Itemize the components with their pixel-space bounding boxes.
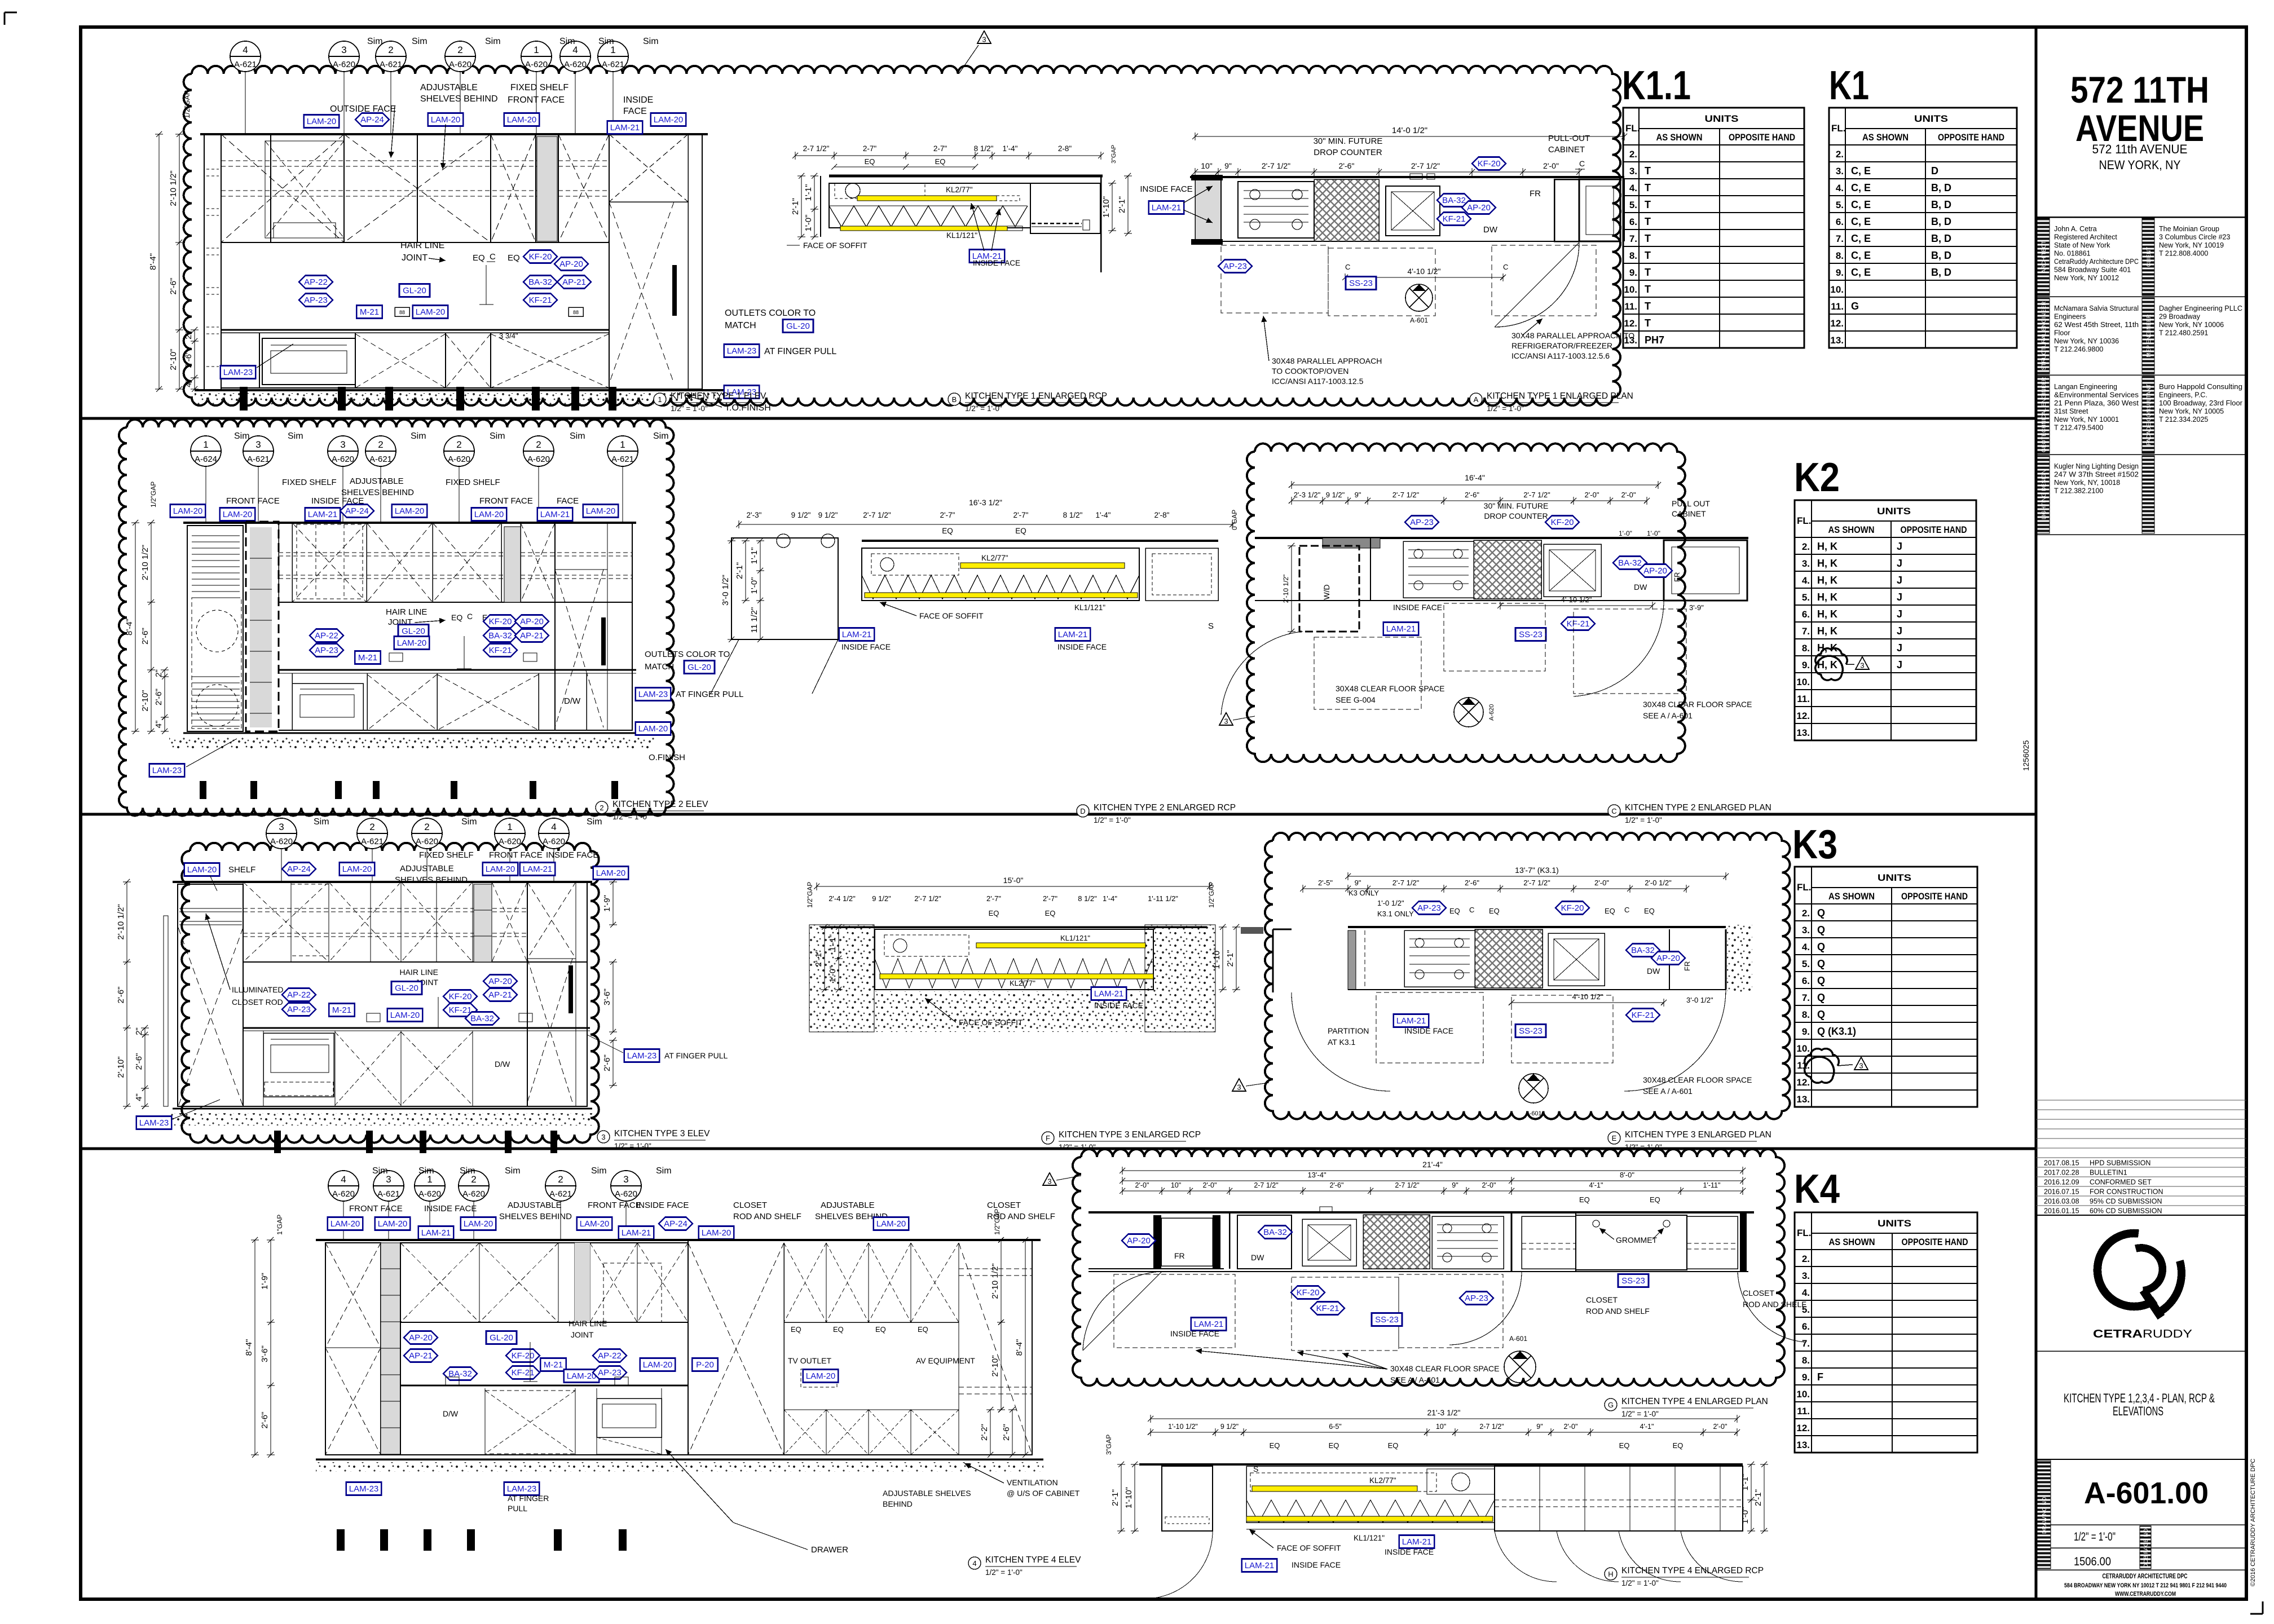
- svg-text:C: C: [1579, 159, 1585, 168]
- svg-text:LAM-20: LAM-20: [397, 638, 427, 648]
- svg-text:2'-1": 2'-1": [1110, 1489, 1120, 1506]
- svg-text:Q: Q: [1817, 1009, 1825, 1020]
- svg-text:INSIDE FACE: INSIDE FACE: [1140, 184, 1192, 194]
- svg-text:30" MIN. FUTURE: 30" MIN. FUTURE: [1484, 501, 1549, 510]
- svg-text:LAM-21: LAM-21: [1194, 1319, 1224, 1329]
- svg-text:C: C: [467, 612, 473, 621]
- svg-text:PH7: PH7: [1645, 334, 1664, 346]
- svg-text:2'-6": 2'-6": [184, 351, 193, 368]
- svg-text:A-620: A-620: [332, 1189, 355, 1199]
- svg-text:ICC/ANSI A117-1003.12.5: ICC/ANSI A117-1003.12.5: [1272, 377, 1364, 386]
- svg-text:3.: 3.: [1802, 925, 1810, 935]
- svg-text:2: 2: [456, 439, 461, 450]
- svg-text:T: T: [1645, 317, 1651, 329]
- svg-text:3: 3: [1237, 1083, 1241, 1091]
- svg-text:Langan Engineering: Langan Engineering: [2054, 383, 2117, 391]
- svg-text:2'-0": 2'-0": [1203, 1181, 1217, 1189]
- svg-text:ARCHITECT: ARCHITECT: [2041, 241, 2047, 273]
- svg-text:LAM-20: LAM-20: [580, 1219, 610, 1229]
- svg-text:1/2" = 1'-0": 1/2" = 1'-0": [1094, 816, 1131, 824]
- svg-text:P-20: P-20: [696, 1360, 714, 1370]
- svg-text:CetraRuddy Architecture DPC: CetraRuddy Architecture DPC: [2054, 258, 2139, 266]
- svg-text:SS-23: SS-23: [1349, 279, 1373, 288]
- svg-text:EQ: EQ: [1673, 1441, 1684, 1450]
- svg-text:G: G: [1608, 1401, 1614, 1409]
- svg-text:3 3/4": 3 3/4": [499, 332, 518, 340]
- svg-text:LAM-20: LAM-20: [586, 506, 616, 516]
- svg-text:EQ: EQ: [918, 1325, 928, 1334]
- svg-text:SHELVES BEHIND: SHELVES BEHIND: [420, 94, 498, 104]
- svg-text:K3 ONLY: K3 ONLY: [1348, 889, 1379, 897]
- svg-text:2'-0 1/2": 2'-0 1/2": [1645, 879, 1672, 887]
- svg-text:SEE G-004: SEE G-004: [1336, 695, 1376, 704]
- svg-text:2: 2: [378, 439, 383, 450]
- svg-text:Kugler Ning Lighting Design: Kugler Ning Lighting Design: [2054, 462, 2139, 470]
- svg-text:C, E: C, E: [1851, 199, 1871, 210]
- svg-text:F: F: [1046, 1134, 1050, 1142]
- svg-text:UNITS: UNITS: [1878, 1218, 1911, 1229]
- svg-text:A-621: A-621: [377, 1189, 400, 1199]
- svg-text:B, D: B, D: [1931, 182, 1951, 193]
- svg-text:AP-20: AP-20: [1127, 1236, 1151, 1246]
- svg-text:K3.1 ONLY: K3.1 ONLY: [1377, 910, 1414, 918]
- svg-text:Sim: Sim: [460, 1166, 475, 1176]
- svg-text:4'-10 1/2": 4'-10 1/2": [1572, 992, 1603, 1001]
- svg-text:3'-0 1/2": 3'-0 1/2": [1686, 996, 1713, 1004]
- svg-text:New York, NY 10005: New York, NY 10005: [2159, 408, 2224, 416]
- svg-text:T 212.246.9800: T 212.246.9800: [2054, 346, 2103, 354]
- svg-text:AT FINGER PULL: AT FINGER PULL: [664, 1051, 728, 1060]
- svg-text:30" MIN. FUTURE: 30" MIN. FUTURE: [1314, 136, 1383, 146]
- svg-text:2'-10 1/2": 2'-10 1/2": [116, 904, 126, 939]
- svg-text:EQ: EQ: [1270, 1441, 1280, 1450]
- svg-text:H, K: H, K: [1817, 558, 1837, 569]
- svg-text:2016.07.15: 2016.07.15: [2044, 1188, 2079, 1196]
- svg-text:2'-4 1/2": 2'-4 1/2": [828, 894, 856, 903]
- svg-text:1'-10": 1'-10": [1212, 947, 1222, 969]
- svg-text:DROP COUNTER: DROP COUNTER: [1314, 148, 1382, 157]
- svg-text:1'-4": 1'-4": [1096, 511, 1111, 519]
- svg-text:KITCHEN TYPE 3 ENLARGED RCP: KITCHEN TYPE 3 ENLARGED RCP: [1059, 1130, 1201, 1140]
- svg-text:EQ: EQ: [473, 253, 485, 263]
- svg-text:LAM-20: LAM-20: [416, 307, 446, 317]
- svg-text:1'-1": 1'-1": [750, 548, 759, 564]
- svg-text:LAM-20: LAM-20: [643, 1360, 673, 1370]
- svg-text:4.: 4.: [1802, 1287, 1810, 1298]
- svg-text:1'-1": 1'-1": [828, 934, 838, 951]
- svg-text:7.: 7.: [1802, 626, 1810, 637]
- svg-text:LAM-20: LAM-20: [638, 724, 668, 734]
- svg-text:A-601: A-601: [1410, 316, 1428, 324]
- svg-text:1/2" = 1'-0": 1/2" = 1'-0": [1625, 816, 1662, 824]
- svg-text:Sim: Sim: [461, 817, 477, 827]
- svg-text:FIXED SHELF: FIXED SHELF: [446, 478, 500, 487]
- svg-text:12.: 12.: [1830, 318, 1844, 329]
- svg-text:2'-6": 2'-6": [1330, 1181, 1344, 1189]
- svg-text:©2016 CETRARUDDY ARCHITECTURE: ©2016 CETRARUDDY ARCHITECTURE DPC: [2250, 1459, 2257, 1587]
- svg-text:1/2"GAP: 1/2"GAP: [806, 882, 814, 908]
- svg-text:3: 3: [1224, 717, 1228, 725]
- svg-text:AP-20: AP-20: [409, 1333, 433, 1343]
- svg-text:T: T: [1645, 233, 1651, 244]
- svg-text:OPPOSITE HAND: OPPOSITE HAND: [1938, 132, 2004, 143]
- svg-text:Q: Q: [1817, 992, 1825, 1003]
- svg-text:11.: 11.: [1797, 1406, 1810, 1416]
- svg-text:GL-20: GL-20: [688, 663, 711, 672]
- svg-text:FOR CONSTRUCTION: FOR CONSTRUCTION: [2090, 1188, 2163, 1196]
- svg-text:&Environmental Services: &Environmental Services: [2054, 391, 2139, 399]
- svg-text:1: 1: [534, 45, 539, 55]
- svg-text:G: G: [1851, 301, 1859, 312]
- svg-text:8.: 8.: [1802, 643, 1810, 654]
- svg-text:KF-20: KF-20: [1561, 903, 1584, 913]
- svg-text:2.: 2.: [1802, 1254, 1810, 1264]
- svg-text:C: C: [1611, 807, 1616, 815]
- svg-text:A-621: A-621: [361, 837, 384, 846]
- svg-text:9.: 9.: [1629, 267, 1637, 278]
- svg-text:BA-32: BA-32: [470, 1014, 494, 1023]
- svg-text:@ U/S OF CABINET: @ U/S OF CABINET: [1007, 1489, 1080, 1498]
- svg-text:572 11TH: 572 11TH: [2070, 69, 2209, 111]
- svg-text:PULL-OUT: PULL-OUT: [1548, 134, 1590, 143]
- svg-text:A-621: A-621: [247, 454, 270, 464]
- svg-text:AS SHOWN: AS SHOWN: [1656, 132, 1703, 143]
- svg-text:H, K: H, K: [1817, 541, 1837, 552]
- svg-text:D/W: D/W: [564, 696, 581, 706]
- svg-text:21 Penn Plaza, 360 West: 21 Penn Plaza, 360 West: [2054, 399, 2139, 407]
- svg-text:9": 9": [1536, 1423, 1543, 1431]
- svg-text:584 Broadway Suite 401: 584 Broadway Suite 401: [2054, 266, 2131, 274]
- svg-text:T: T: [1645, 250, 1651, 261]
- svg-text:GROMMET: GROMMET: [1616, 1235, 1658, 1245]
- svg-text:HAIR LINE: HAIR LINE: [400, 968, 438, 977]
- svg-text:FRONT FACE: FRONT FACE: [489, 850, 543, 860]
- svg-text:572 11th AVENUE: 572 11th AVENUE: [2092, 142, 2188, 156]
- svg-text:5.: 5.: [1836, 200, 1844, 210]
- svg-text:FIXED SHELF: FIXED SHELF: [282, 478, 337, 487]
- svg-text:KITCHEN TYPE 1 ELEV: KITCHEN TYPE 1 ELEV: [671, 391, 766, 401]
- svg-text:2'-8": 2'-8": [1154, 511, 1170, 519]
- svg-text:4'-10 1/2": 4'-10 1/2": [1561, 595, 1592, 604]
- svg-text:2'-1": 2'-1": [1226, 950, 1235, 967]
- svg-text:PULL: PULL: [508, 1504, 527, 1513]
- svg-text:FR: FR: [1174, 1251, 1185, 1260]
- svg-text:OPPOSITE HAND: OPPOSITE HAND: [1729, 132, 1795, 143]
- svg-text:2'-10 1/2": 2'-10 1/2": [1282, 575, 1290, 603]
- svg-text:INSIDE FACE: INSIDE FACE: [841, 642, 891, 651]
- svg-text:2'-3": 2'-3": [747, 511, 762, 519]
- svg-text:9 1/2": 9 1/2": [1220, 1423, 1239, 1431]
- svg-text:4: 4: [972, 1559, 976, 1568]
- svg-text:BA-32: BA-32: [1631, 946, 1655, 955]
- svg-text:62 West 45th Street, 11th: 62 West 45th Street, 11th: [2054, 321, 2139, 329]
- svg-text:16'-3 1/2": 16'-3 1/2": [969, 498, 1002, 507]
- svg-text:3.: 3.: [1629, 166, 1637, 176]
- svg-text:2'-7": 2'-7": [1013, 511, 1029, 519]
- svg-text:13'-7" (K3.1): 13'-7" (K3.1): [1515, 866, 1559, 875]
- svg-text:1'-0": 1'-0": [1740, 1507, 1750, 1524]
- svg-text:J: J: [1897, 575, 1902, 586]
- svg-text:FACE OF SOFFIT: FACE OF SOFFIT: [919, 611, 984, 620]
- svg-text:11.: 11.: [1797, 694, 1810, 704]
- svg-text:JOINT: JOINT: [571, 1330, 594, 1339]
- svg-text:1'-1": 1'-1": [1740, 1474, 1750, 1491]
- svg-text:2": 2": [134, 1027, 144, 1035]
- svg-text:BULLETIN1: BULLETIN1: [2090, 1169, 2127, 1177]
- svg-text:2'-0": 2'-0": [1482, 1181, 1496, 1189]
- svg-text:S: S: [1208, 621, 1214, 631]
- svg-text:MEP ENGINEER: MEP ENGINEER: [2146, 314, 2152, 358]
- svg-text:1/2" = 1'-0": 1/2" = 1'-0": [985, 1568, 1023, 1577]
- svg-text:2: 2: [369, 822, 374, 832]
- svg-text:FL.: FL.: [1625, 123, 1640, 134]
- svg-text:INSIDE: INSIDE: [623, 95, 653, 105]
- svg-text:7.: 7.: [1836, 233, 1844, 244]
- svg-text:FR: FR: [1530, 189, 1541, 198]
- svg-text:A-620: A-620: [615, 1189, 637, 1199]
- svg-text:KF-21: KF-21: [1632, 1010, 1655, 1020]
- svg-text:8'-0": 8'-0": [1620, 1171, 1634, 1179]
- svg-text:LAM-21: LAM-21: [1152, 203, 1182, 213]
- svg-text:1'-11 1/2": 1'-11 1/2": [1148, 894, 1178, 903]
- svg-text:10.: 10.: [1796, 1043, 1810, 1054]
- svg-text:2-7 1/2": 2-7 1/2": [1254, 1181, 1278, 1189]
- svg-text:3: 3: [1047, 1177, 1051, 1185]
- svg-text:9.: 9.: [1802, 1372, 1810, 1383]
- svg-text:4": 4": [154, 721, 164, 729]
- svg-text:LAM-20: LAM-20: [464, 1219, 493, 1229]
- svg-text:LAM-20: LAM-20: [654, 115, 684, 125]
- svg-text:CLIENT: CLIENT: [2146, 247, 2152, 267]
- svg-text:ILLUMINATED: ILLUMINATED: [232, 985, 284, 994]
- svg-text:T.O.FINISH: T.O.FINISH: [725, 403, 771, 413]
- svg-text:A-620: A-620: [448, 454, 470, 464]
- svg-text:Sim: Sim: [643, 37, 659, 46]
- svg-text:H, K: H, K: [1817, 575, 1837, 586]
- svg-text:LAM-21: LAM-21: [1094, 989, 1124, 999]
- svg-text:Sim: Sim: [485, 37, 501, 46]
- svg-text:11 1/2": 11 1/2": [750, 607, 759, 633]
- svg-text:Q: Q: [1817, 941, 1825, 952]
- svg-text:3: 3: [1860, 661, 1864, 669]
- svg-text:LAM-21: LAM-21: [1245, 1561, 1275, 1570]
- svg-text:1'-10": 1'-10": [1124, 1487, 1134, 1508]
- svg-text:HAIR LINE: HAIR LINE: [386, 607, 427, 617]
- svg-text:OPPOSITE HAND: OPPOSITE HAND: [1901, 524, 1967, 535]
- svg-text:3.: 3.: [1802, 558, 1810, 569]
- svg-text:ROD AND SHELF: ROD AND SHELF: [1743, 1300, 1806, 1309]
- svg-text:AP-24: AP-24: [360, 115, 384, 125]
- svg-text:C: C: [1503, 263, 1508, 271]
- svg-text:2'-7 1/2": 2'-7 1/2": [863, 511, 891, 519]
- svg-text:1: 1: [507, 822, 512, 832]
- svg-text:2'-0": 2'-0": [1135, 1181, 1149, 1189]
- svg-text:T: T: [1645, 182, 1651, 193]
- svg-text:REFRIGERATOR/FREEZER: REFRIGERATOR/FREEZER: [1511, 341, 1612, 350]
- svg-text:INSIDE FACE: INSIDE FACE: [1094, 1001, 1143, 1010]
- svg-text:4'-1": 4'-1": [1640, 1423, 1654, 1431]
- svg-text:4.: 4.: [1629, 183, 1637, 193]
- svg-text:D: D: [1080, 807, 1085, 815]
- svg-text:2'-7 1/2": 2'-7 1/2": [1411, 161, 1440, 170]
- svg-text:GL-20: GL-20: [402, 626, 425, 636]
- svg-text:K2: K2: [1794, 455, 1840, 500]
- svg-text:10.: 10.: [1830, 284, 1844, 295]
- svg-text:1: 1: [658, 395, 662, 404]
- svg-text:10": 10": [1201, 161, 1213, 170]
- svg-text:1/2" = 1'-0": 1/2" = 1'-0": [1621, 1579, 1659, 1587]
- svg-text:H, K: H, K: [1817, 659, 1837, 670]
- svg-text:13.: 13.: [1796, 727, 1810, 738]
- svg-text:Sim: Sim: [598, 37, 614, 46]
- svg-text:INSIDE FACE: INSIDE FACE: [1057, 642, 1107, 651]
- svg-text:1'-4": 1'-4": [1003, 144, 1018, 153]
- svg-text:1'-0 1/2": 1'-0 1/2": [1377, 899, 1404, 907]
- svg-text:8 1/2": 8 1/2": [1063, 511, 1083, 519]
- svg-text:6-5": 6-5": [1329, 1423, 1342, 1431]
- svg-text:1/2" = 1'-0": 1/2" = 1'-0": [965, 404, 1002, 413]
- svg-text:INSIDE FACE: INSIDE FACE: [1170, 1329, 1219, 1338]
- svg-text:Q: Q: [1817, 924, 1825, 935]
- svg-text:B, D: B, D: [1931, 216, 1951, 227]
- svg-text:10": 10": [1436, 1423, 1446, 1431]
- svg-text:Sim: Sim: [587, 817, 602, 827]
- svg-text:2'-10 1/2": 2'-10 1/2": [140, 545, 150, 580]
- svg-text:2-8": 2-8": [1058, 144, 1072, 153]
- svg-text:OPPOSITE HAND: OPPOSITE HAND: [1901, 891, 1968, 902]
- svg-text:Engineers, P.C.: Engineers, P.C.: [2159, 391, 2207, 399]
- svg-text:LAM-23: LAM-23: [349, 1484, 379, 1494]
- svg-text:K1.1: K1.1: [1622, 63, 1691, 108]
- svg-text:H: H: [1608, 1570, 1613, 1578]
- svg-text:LAM-20: LAM-20: [187, 865, 217, 875]
- svg-text:AP-21: AP-21: [562, 277, 586, 287]
- svg-text:BA-32: BA-32: [488, 631, 512, 641]
- svg-text:3: 3: [340, 439, 345, 450]
- svg-text:Sim: Sim: [234, 431, 250, 441]
- svg-text:A-620: A-620: [525, 60, 548, 69]
- svg-text:J: J: [1897, 541, 1902, 552]
- svg-text:4": 4": [184, 379, 193, 387]
- svg-text:6.: 6.: [1836, 217, 1844, 227]
- svg-text:A-620: A-620: [418, 1189, 441, 1199]
- svg-text:10.: 10.: [1624, 284, 1637, 295]
- svg-text:ROD AND SHELF: ROD AND SHELF: [1586, 1307, 1650, 1316]
- svg-text:11.: 11.: [1831, 301, 1844, 312]
- svg-text:8.: 8.: [1802, 1009, 1810, 1020]
- svg-text:C: C: [490, 252, 496, 262]
- svg-text:FRONT FACE: FRONT FACE: [588, 1201, 641, 1210]
- svg-text:LAM-21: LAM-21: [1386, 624, 1416, 634]
- svg-text:CLOSET: CLOSET: [987, 1201, 1021, 1210]
- svg-text:4.: 4.: [1802, 942, 1810, 952]
- svg-text:LAM-23: LAM-23: [223, 368, 253, 377]
- svg-text:9 1/2": 9 1/2": [791, 511, 811, 519]
- svg-text:LAM-23: LAM-23: [727, 346, 757, 356]
- svg-text:WWW.CETRARUDDY.COM: WWW.CETRARUDDY.COM: [2115, 1591, 2176, 1597]
- svg-text:New York, NY 10036: New York, NY 10036: [2054, 337, 2119, 345]
- svg-text:4.: 4.: [1836, 183, 1844, 193]
- svg-text:CABINET: CABINET: [1548, 145, 1585, 155]
- svg-text:2'-1": 2'-1": [791, 198, 800, 215]
- svg-text:Sim: Sim: [505, 1166, 521, 1176]
- svg-text:FR: FR: [1673, 572, 1681, 582]
- svg-text:LAM-20: LAM-20: [173, 506, 203, 516]
- svg-text:KL2/77": KL2/77": [946, 186, 973, 194]
- svg-text:KL2/77": KL2/77": [1369, 1476, 1396, 1485]
- svg-text:EQ: EQ: [1650, 1195, 1660, 1204]
- svg-text:John A. Cetra: John A. Cetra: [2054, 225, 2097, 233]
- svg-text:AP-22: AP-22: [304, 277, 328, 287]
- svg-text:247 W 37th Street #1502: 247 W 37th Street #1502: [2054, 471, 2139, 479]
- svg-text:AP-23: AP-23: [1465, 1294, 1488, 1303]
- svg-text:CLOSET: CLOSET: [1586, 1295, 1618, 1304]
- svg-text:88: 88: [573, 310, 579, 315]
- svg-text:J: J: [1897, 608, 1902, 620]
- svg-text:F: F: [1817, 1371, 1823, 1383]
- svg-text:AP-23: AP-23: [1223, 262, 1247, 271]
- svg-text:2'-6": 2'-6": [116, 987, 126, 1004]
- svg-text:100 Broadway, 23rd Floor: 100 Broadway, 23rd Floor: [2159, 399, 2242, 407]
- svg-text:OUTLETS COLOR TO: OUTLETS COLOR TO: [725, 308, 816, 318]
- svg-text:Sim: Sim: [372, 1166, 388, 1176]
- svg-text:14'-0 1/2": 14'-0 1/2": [1392, 126, 1427, 135]
- svg-text:1/2"GAP: 1/2"GAP: [993, 1209, 1001, 1235]
- svg-text:D/W: D/W: [495, 1060, 510, 1069]
- svg-text:3.: 3.: [1802, 1270, 1810, 1281]
- svg-text:A-621: A-621: [380, 60, 402, 69]
- svg-text:60% CD SUBMISSION: 60% CD SUBMISSION: [2090, 1207, 2162, 1215]
- svg-text:30X48 CLEAR FLOOR SPACE: 30X48 CLEAR FLOOR SPACE: [1336, 684, 1444, 693]
- svg-text:9.: 9.: [1802, 660, 1810, 670]
- svg-text:Sim: Sim: [288, 431, 303, 441]
- svg-text:New York, NY 10001: New York, NY 10001: [2054, 416, 2119, 423]
- svg-text:12.: 12.: [1796, 1077, 1810, 1088]
- svg-text:1/2"GAP: 1/2"GAP: [1207, 882, 1215, 908]
- svg-text:AT FINGER PULL: AT FINGER PULL: [764, 347, 836, 356]
- svg-text:1/2" = 1'-0": 1/2" = 1'-0": [614, 1142, 651, 1150]
- svg-text:J: J: [1897, 659, 1902, 670]
- svg-text:AP-23: AP-23: [287, 1005, 311, 1014]
- svg-text:ICC/ANSI A117-1003.12.5.6: ICC/ANSI A117-1003.12.5.6: [1511, 351, 1610, 360]
- svg-text:FRONT FACE: FRONT FACE: [508, 95, 565, 105]
- svg-text:13.: 13.: [1796, 1094, 1810, 1105]
- svg-text:2.: 2.: [1802, 541, 1810, 552]
- svg-text:1'-11": 1'-11": [1703, 1181, 1721, 1189]
- svg-text:2'-7 1/2": 2'-7 1/2": [1523, 491, 1550, 499]
- svg-text:JOINT: JOINT: [402, 253, 428, 263]
- svg-text:FR: FR: [1683, 961, 1691, 971]
- svg-text:DRAWING NO.: DRAWING NO.: [2042, 1495, 2048, 1534]
- svg-text:UNITS: UNITS: [1914, 113, 1948, 124]
- svg-text:E: E: [1612, 1134, 1617, 1142]
- svg-text:T: T: [1645, 165, 1651, 176]
- svg-text:Buro Happold Consulting: Buro Happold Consulting: [2159, 383, 2242, 391]
- svg-text:LAM-20: LAM-20: [342, 864, 372, 874]
- svg-text:AP-20: AP-20: [1467, 203, 1491, 213]
- svg-text:Sim: Sim: [559, 37, 575, 46]
- svg-text:KF-21: KF-21: [1443, 214, 1466, 224]
- svg-text:12.: 12.: [1796, 1423, 1810, 1433]
- svg-text:AP-20: AP-20: [520, 617, 544, 626]
- svg-text:ADJUSTABLE SHELVES: ADJUSTABLE SHELVES: [883, 1489, 971, 1498]
- svg-text:H, K: H, K: [1817, 608, 1837, 620]
- svg-text:KF-21: KF-21: [1316, 1304, 1339, 1313]
- svg-text:Sim: Sim: [591, 1166, 607, 1176]
- svg-text:LIGHTING DESIGN: LIGHTING DESIGN: [2041, 470, 2047, 519]
- svg-text:T 212.480.2591: T 212.480.2591: [2159, 329, 2208, 337]
- svg-text:13'-4": 13'-4": [1307, 1171, 1326, 1179]
